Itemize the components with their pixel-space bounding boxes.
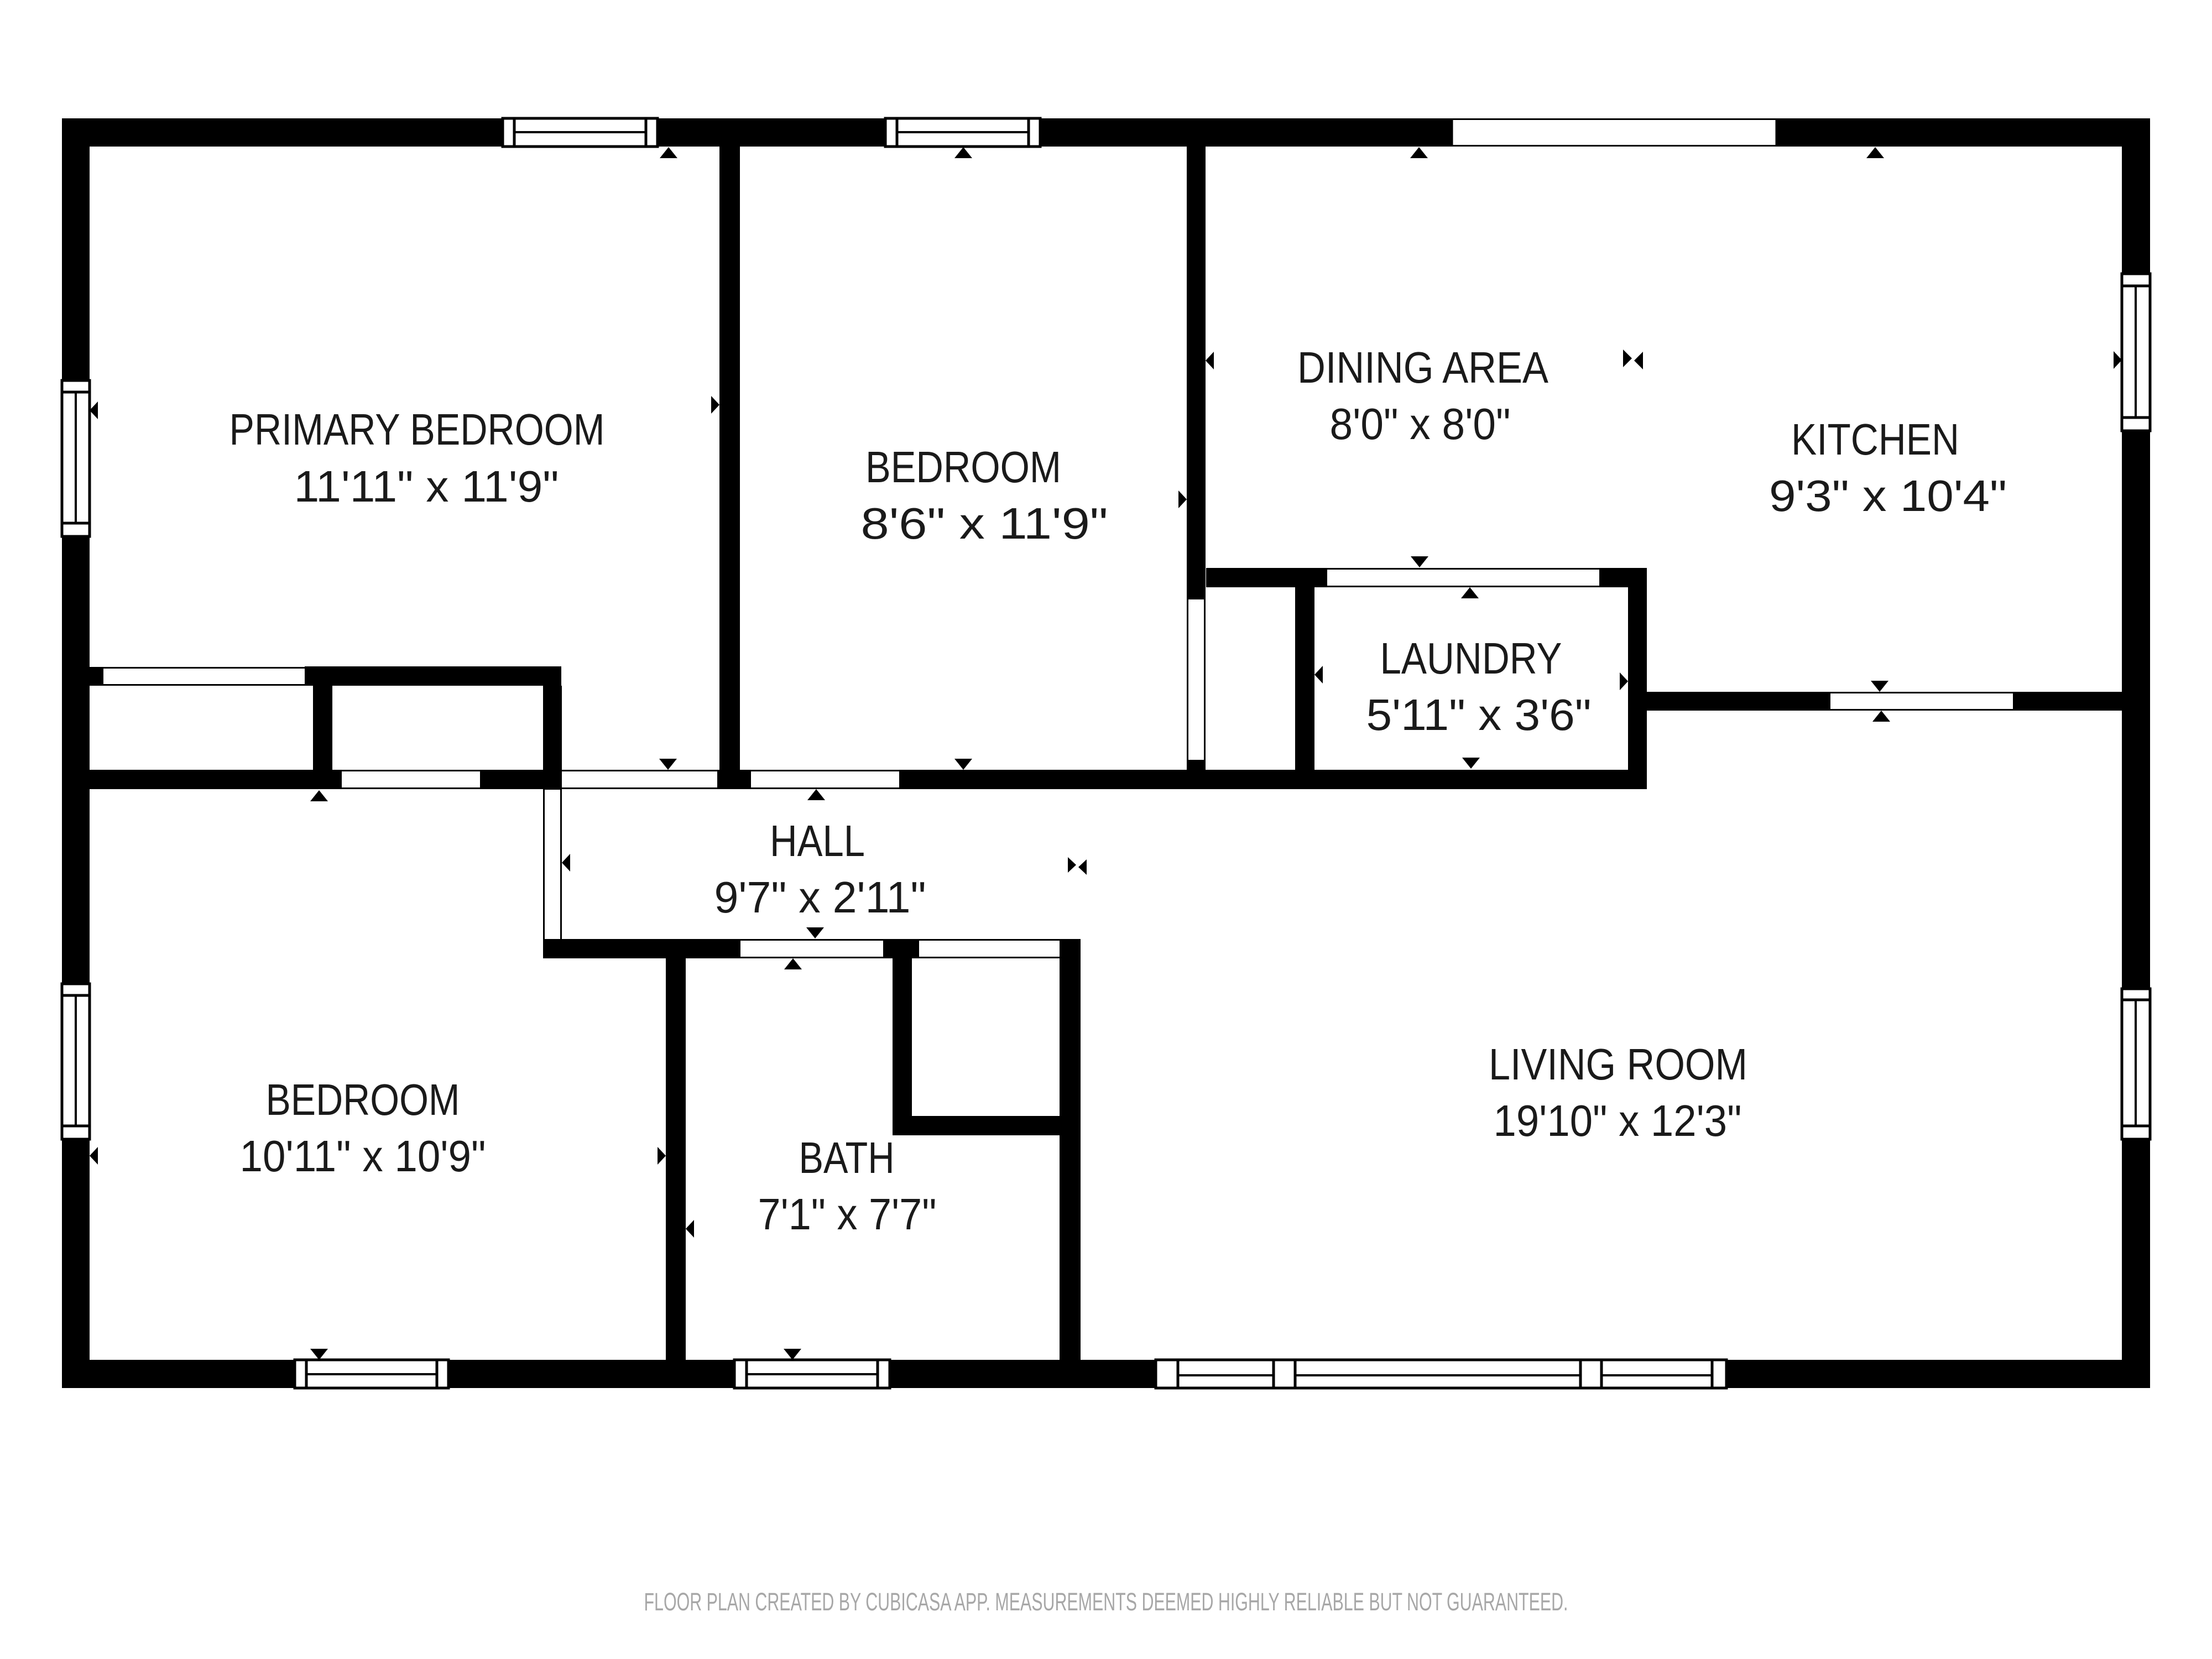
svg-text:7'1" x 7'7": 7'1" x 7'7" — [758, 1190, 937, 1239]
svg-text:9'7" x 2'11": 9'7" x 2'11" — [714, 873, 926, 922]
svg-text:HALL: HALL — [770, 816, 865, 865]
svg-text:FLOOR PLAN CREATED BY CUBICASA: FLOOR PLAN CREATED BY CUBICASA APP. MEAS… — [644, 1588, 1568, 1616]
svg-text:8'0" x 8'0": 8'0" x 8'0" — [1330, 399, 1511, 448]
svg-text:11'11" x 11'9": 11'11" x 11'9" — [294, 462, 559, 511]
svg-text:19'10" x 12'3": 19'10" x 12'3" — [1494, 1096, 1742, 1145]
svg-text:10'11" x 10'9": 10'11" x 10'9" — [240, 1131, 486, 1181]
svg-text:BEDROOM: BEDROOM — [266, 1075, 460, 1124]
svg-text:LAUNDRY: LAUNDRY — [1380, 634, 1562, 683]
svg-text:5'11" x 3'6": 5'11" x 3'6" — [1366, 690, 1592, 739]
svg-text:PRIMARY BEDROOM: PRIMARY BEDROOM — [229, 405, 605, 454]
svg-text:9'3" x 10'4": 9'3" x 10'4" — [1769, 471, 2007, 520]
svg-text:KITCHEN: KITCHEN — [1791, 415, 1959, 464]
svg-text:BEDROOM: BEDROOM — [865, 442, 1061, 492]
svg-text:8'6" x 11'9": 8'6" x 11'9" — [861, 499, 1108, 548]
svg-text:LIVING ROOM: LIVING ROOM — [1489, 1040, 1747, 1089]
svg-text:DINING AREA: DINING AREA — [1297, 343, 1549, 392]
svg-text:BATH: BATH — [799, 1133, 895, 1182]
